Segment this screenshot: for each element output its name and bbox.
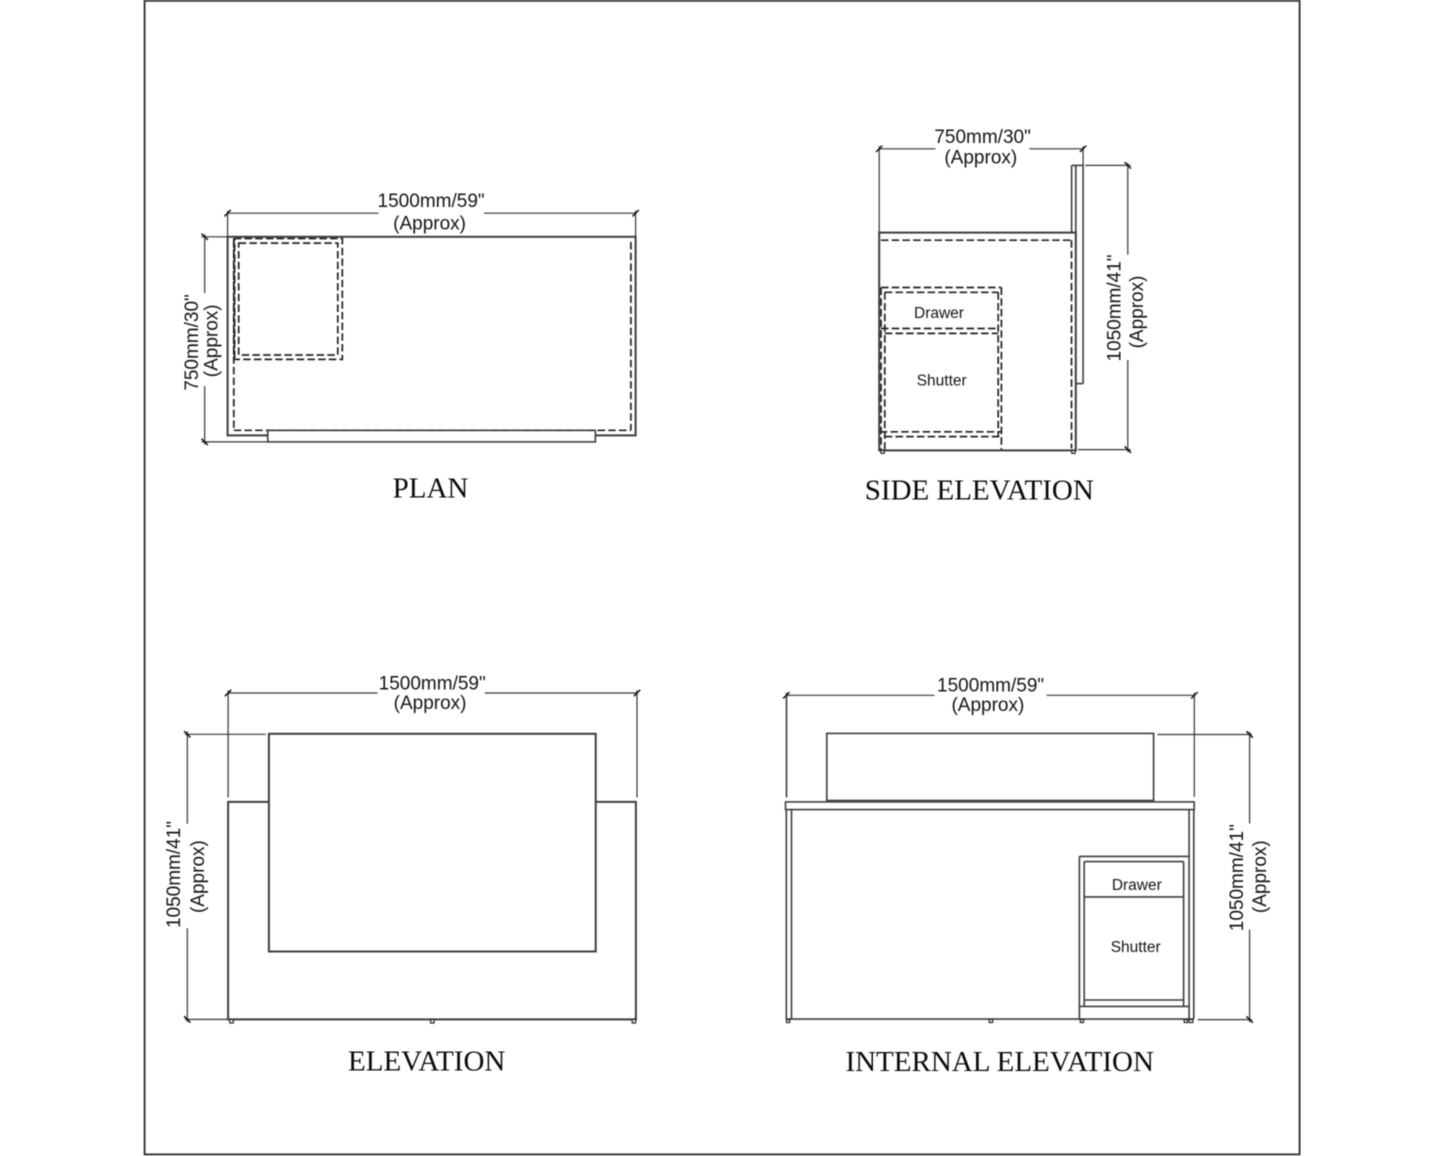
svg-text:SIDE ELEVATION: SIDE ELEVATION [865,475,1094,507]
svg-text:PLAN: PLAN [393,473,469,505]
svg-text:(Approx): (Approx) [1127,276,1148,349]
svg-text:Shutter: Shutter [1111,939,1161,956]
svg-text:(Approx): (Approx) [1250,840,1271,913]
svg-text:Shutter: Shutter [917,373,967,390]
svg-text:(Approx): (Approx) [944,147,1017,168]
svg-text:(Approx): (Approx) [951,695,1024,716]
svg-text:750mm/30": 750mm/30" [934,127,1031,148]
svg-text:(Approx): (Approx) [188,840,209,913]
svg-text:1500mm/59": 1500mm/59" [378,191,485,212]
svg-text:Drawer: Drawer [914,305,964,322]
svg-text:750mm/30": 750mm/30" [182,294,203,391]
svg-text:(Approx): (Approx) [394,693,467,714]
svg-text:1050mm/41": 1050mm/41" [1104,254,1125,361]
svg-text:1500mm/59": 1500mm/59" [937,675,1044,696]
svg-text:1500mm/59": 1500mm/59" [379,673,486,694]
svg-text:1050mm/41": 1050mm/41" [1227,824,1248,931]
svg-text:(Approx): (Approx) [393,213,466,234]
svg-text:INTERNAL ELEVATION: INTERNAL ELEVATION [845,1046,1154,1078]
svg-text:1050mm/41": 1050mm/41" [164,821,185,928]
svg-text:Drawer: Drawer [1112,877,1162,894]
svg-text:(Approx): (Approx) [202,304,223,377]
svg-text:ELEVATION: ELEVATION [348,1046,505,1078]
